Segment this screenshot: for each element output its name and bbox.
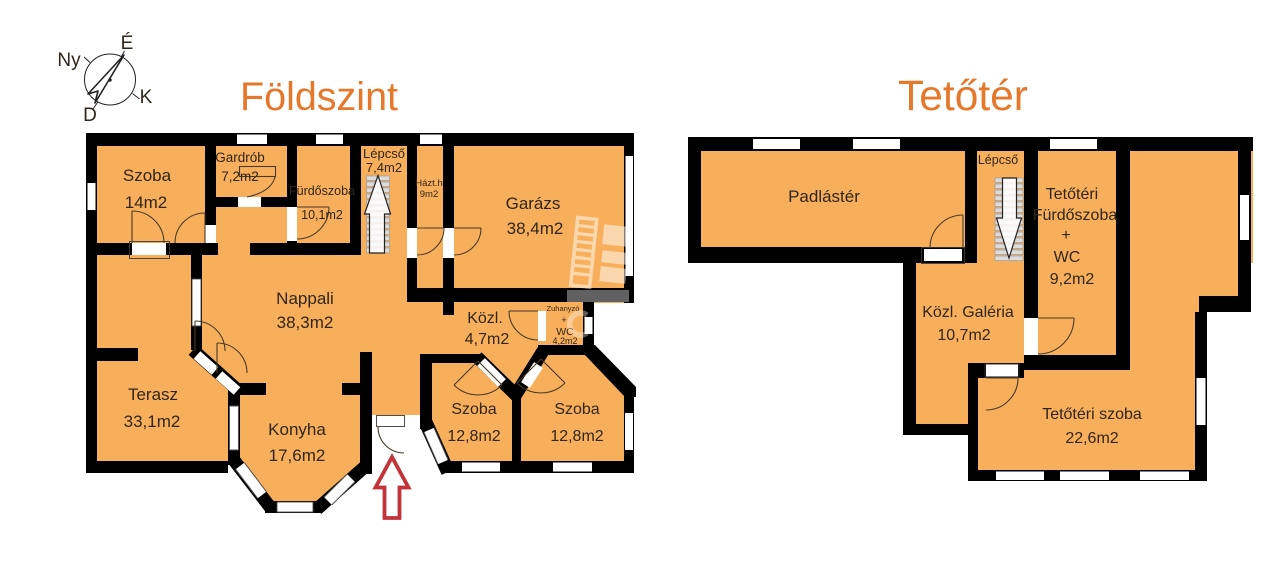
svg-text:Garázs: Garázs: [506, 194, 561, 213]
svg-text:Zuhanyzó: Zuhanyzó: [547, 304, 580, 313]
svg-text:4,7m2: 4,7m2: [465, 331, 510, 348]
svg-text:Közl. Galéria: Közl. Galéria: [922, 304, 1014, 321]
svg-text:Padlástér: Padlástér: [788, 187, 860, 206]
svg-text:Szoba: Szoba: [123, 166, 172, 185]
svg-text:10,7m2: 10,7m2: [937, 327, 990, 344]
svg-text:WC: WC: [1054, 249, 1081, 266]
svg-text:10,1m2: 10,1m2: [301, 208, 343, 222]
svg-text:12,8m2: 12,8m2: [447, 428, 500, 445]
svg-text:9m2: 9m2: [420, 189, 438, 200]
svg-text:Házt.h: Házt.h: [415, 178, 442, 189]
svg-text:Nappali: Nappali: [276, 289, 334, 308]
svg-text:22,6m2: 22,6m2: [1065, 430, 1118, 447]
svg-text:Terasz: Terasz: [128, 385, 178, 404]
svg-text:Lépcső: Lépcső: [978, 153, 1018, 167]
svg-text:Lépcső: Lépcső: [363, 146, 405, 161]
svg-text:Szoba: Szoba: [554, 401, 599, 418]
svg-text:Tetőtéri szoba: Tetőtéri szoba: [1042, 406, 1142, 423]
svg-text:Tetőtér: Tetőtér: [898, 73, 1028, 120]
svg-text:+: +: [561, 315, 566, 325]
svg-text:K: K: [140, 87, 153, 108]
svg-text:Tetőtéri: Tetőtéri: [1046, 186, 1098, 203]
svg-text:Szoba: Szoba: [451, 401, 496, 418]
svg-text:Fürdőszoba: Fürdőszoba: [1033, 207, 1118, 224]
svg-text:D: D: [83, 105, 97, 126]
svg-text:Gardrób: Gardrób: [215, 150, 265, 165]
svg-text:É: É: [121, 33, 134, 54]
svg-text:33,1m2: 33,1m2: [124, 412, 181, 431]
svg-text:Konyha: Konyha: [268, 420, 326, 439]
svg-text:Közl.: Közl.: [467, 310, 503, 327]
svg-text:Fürdőszoba: Fürdőszoba: [289, 184, 355, 198]
svg-text:12,8m2: 12,8m2: [550, 428, 603, 445]
svg-text:Földszint: Földszint: [240, 75, 398, 119]
svg-text:7,2m2: 7,2m2: [221, 169, 259, 184]
svg-text:9,2m2: 9,2m2: [1050, 271, 1095, 288]
svg-text:14m2: 14m2: [125, 193, 168, 212]
svg-text:7,4m2: 7,4m2: [366, 160, 402, 175]
svg-text:Ny: Ny: [57, 50, 81, 71]
svg-text:+: +: [1061, 227, 1070, 244]
svg-text:4,2m2: 4,2m2: [552, 336, 577, 346]
svg-text:38,3m2: 38,3m2: [277, 313, 334, 332]
svg-text:38,4m2: 38,4m2: [507, 219, 564, 238]
svg-text:17,6m2: 17,6m2: [269, 446, 326, 465]
